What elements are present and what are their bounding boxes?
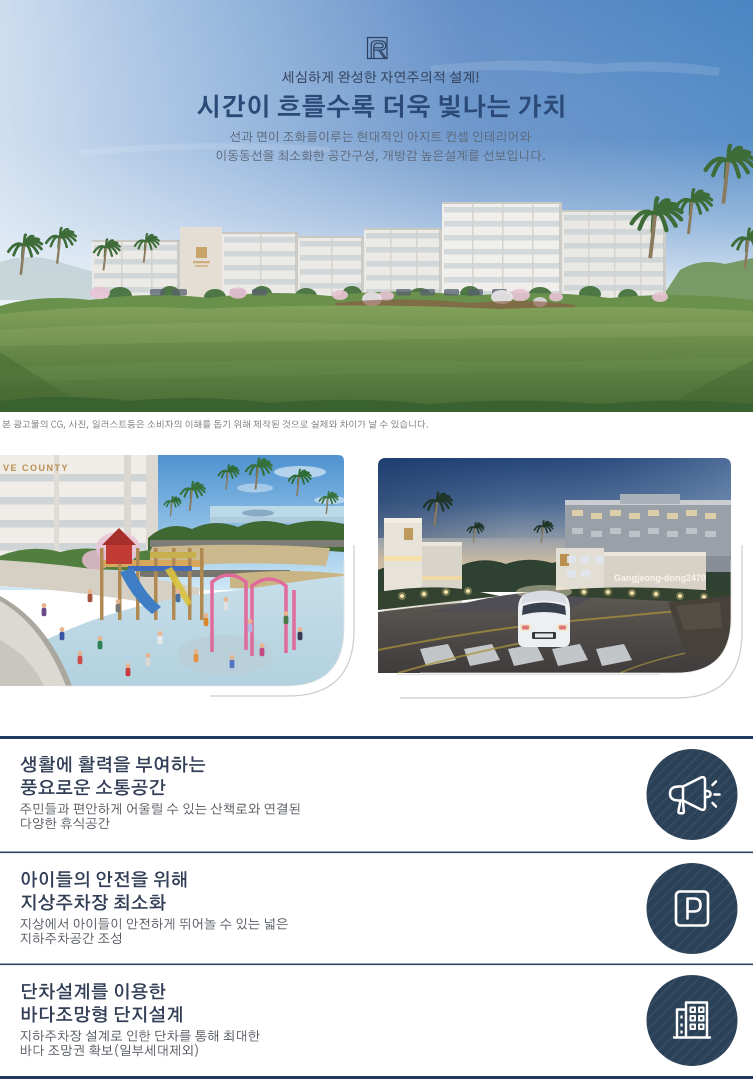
svg-text:VE COUNTY: VE COUNTY <box>3 463 69 473</box>
svg-text:Gangjeong-dong2470: Gangjeong-dong2470 <box>614 573 706 583</box>
